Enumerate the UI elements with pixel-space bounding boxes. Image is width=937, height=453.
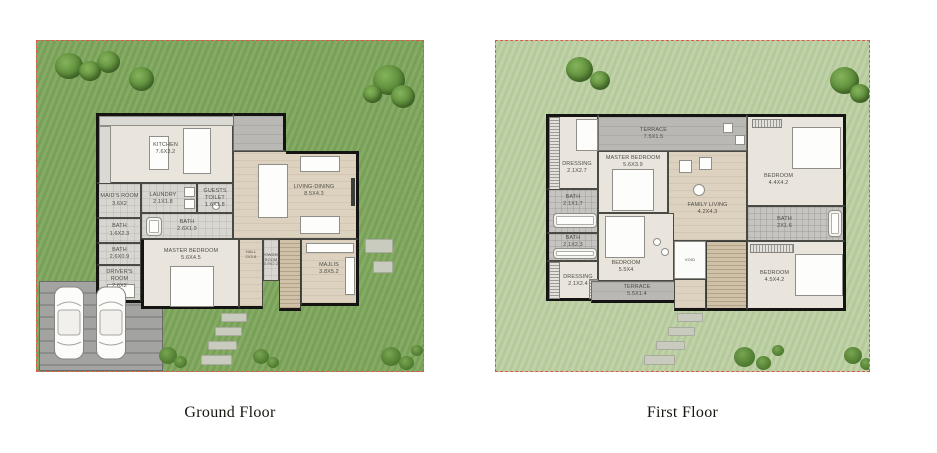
room-family-living: FAMILY LIVING4.2X4.3 <box>668 151 747 241</box>
tree <box>391 85 415 108</box>
first-floor-caption: First Floor <box>495 404 870 422</box>
void-shaft: VOID <box>674 241 706 279</box>
bush <box>411 345 423 356</box>
first-floor-plan: DRESSING2.1X2.7 TERRACE7.5X1.5 MASTER BE… <box>495 40 870 372</box>
room-label: MASTER BEDROOM5.6X3.9 <box>601 155 665 169</box>
car <box>53 285 85 361</box>
armchair <box>679 160 692 173</box>
room-label: MAJLIS3.8X5.2 <box>304 262 354 276</box>
sofa <box>306 243 354 253</box>
tree <box>55 53 83 79</box>
room-bath-upper: BATH2.1X1.7 <box>546 189 598 233</box>
stepping-stone <box>644 355 675 365</box>
entry-porch <box>233 113 286 151</box>
room-label: TERRACE7.5X1.5 <box>601 127 706 141</box>
room-label: LAUNDRY2.1X1.8 <box>144 192 182 206</box>
chair <box>653 238 661 246</box>
wardrobe <box>549 262 560 299</box>
room-label: MAID'S ROOM3.6X2 <box>99 184 140 217</box>
room-label: BATH1.6X2.3 <box>99 219 140 242</box>
room-guests-toilet: GUESTS TOILET1.6X1.8 <box>197 183 233 213</box>
tree <box>566 57 593 82</box>
room-label: BATH2.6X0.9 <box>99 244 140 264</box>
bush <box>399 356 414 370</box>
wardrobe <box>750 244 794 253</box>
room-bath-2: BATH2.6X0.9 <box>96 243 141 265</box>
sofa <box>300 216 340 234</box>
bathtub <box>553 248 597 259</box>
room-bedroom-2: BEDROOM4.5X4.2 <box>747 241 846 311</box>
room-label: BEDROOM5.5X4 <box>601 260 651 274</box>
wardrobe <box>752 119 782 128</box>
bed <box>612 169 654 211</box>
stepping-stone <box>201 355 232 365</box>
room-bedroom-1: BEDROOM4.4X4.2 <box>747 114 846 206</box>
room-label: GUESTS TOILET1.6X1.8 <box>200 188 230 209</box>
room-bath-1: BATH1.6X2.3 <box>96 218 141 243</box>
closet <box>576 119 598 151</box>
bush <box>381 347 401 366</box>
staircase <box>706 241 747 311</box>
room-maids-room: MAID'S ROOM3.6X2 <box>96 183 141 218</box>
bush <box>772 345 784 356</box>
chair <box>723 123 733 133</box>
floor-plan-sheet: KITCHEN7.6X3.2 LIVING-DINING8.5X4.3 MAID… <box>0 0 937 453</box>
room-label: POWDER ROOM0.9X2.2 <box>264 240 278 280</box>
bed <box>792 127 841 169</box>
wardrobe <box>549 117 560 190</box>
room-terrace-bottom: TERRACE5.5X1.4 <box>591 281 683 303</box>
stepping-stone <box>677 313 703 322</box>
ground-floor-caption: Ground Floor <box>36 404 424 422</box>
room-hall: HALL2X3.8 <box>239 239 263 309</box>
room-kitchen: KITCHEN7.6X3.2 <box>96 113 233 183</box>
stepping-stone <box>668 327 695 336</box>
room-label: MASTER BEDROOM5.6X4.5 <box>146 248 236 262</box>
room-laundry: LAUNDRY2.1X1.8 <box>141 183 197 213</box>
tree <box>850 84 870 103</box>
room-bath-lower: BATH2.1X2.3 <box>546 233 598 261</box>
stepping-stone <box>215 327 242 336</box>
room-label: TERRACE5.5X1.4 <box>592 282 682 300</box>
tree <box>129 67 154 91</box>
landing <box>674 279 706 311</box>
staircase <box>279 239 301 311</box>
tree <box>97 51 120 73</box>
room-powder-room: POWDER ROOM0.9X2.2 <box>263 239 279 281</box>
patio-pad <box>373 261 393 273</box>
stepping-stone <box>656 341 685 350</box>
room-label: DRESSING2.1X2.4 <box>561 274 595 288</box>
bathtub <box>553 213 597 228</box>
kitchen-counter <box>99 116 234 126</box>
patio-pad <box>365 239 393 253</box>
room-master-bedroom: MASTER BEDROOM5.6X3.9 <box>598 151 668 213</box>
bush <box>174 356 187 368</box>
bush <box>860 358 870 370</box>
room-living-dining: LIVING-DINING8.5X4.3 <box>233 151 359 239</box>
room-dressing-master: DRESSING2.1X2.7 <box>546 114 598 189</box>
room-label: BEDROOM4.4X4.2 <box>754 173 803 187</box>
room-label: DRESSING2.1X2.7 <box>559 161 595 175</box>
tree <box>590 71 610 90</box>
room-label: HALL2X3.8 <box>242 250 260 259</box>
room-label: KITCHEN7.6X3.2 <box>101 142 230 156</box>
tree <box>363 85 382 103</box>
stepping-stone <box>208 341 237 350</box>
room-bedroom-3: BEDROOM5.5X4 <box>598 213 674 281</box>
bed <box>170 266 214 307</box>
bush <box>734 347 755 367</box>
room-majlis: MAJLIS3.8X5.2 <box>301 239 359 306</box>
room-label: BATH2.1X1.7 <box>551 194 595 208</box>
bush <box>267 357 279 368</box>
wall <box>286 151 359 154</box>
bush <box>756 356 771 370</box>
room-master-bath: BATH2.6X1.9 <box>141 213 233 239</box>
sofa <box>300 156 340 172</box>
coffee-table <box>693 184 705 196</box>
room-label: BATH2.1X2.3 <box>551 235 595 249</box>
room-label: BATH2X1.6 <box>750 216 819 230</box>
room-bath-right: BATH2X1.6 <box>747 206 846 241</box>
room-terrace-top: TERRACE7.5X1.5 <box>598 114 747 151</box>
bathtub <box>828 210 842 237</box>
washer <box>184 187 195 197</box>
stepping-stone <box>221 313 247 322</box>
dryer <box>184 199 195 209</box>
chair <box>735 135 745 145</box>
room-label: FAMILY LIVING4.2X4.3 <box>671 202 744 216</box>
bed <box>795 254 843 296</box>
room-label: LIVING-DINING8.5X4.3 <box>274 184 354 198</box>
ground-floor-plan: KITCHEN7.6X3.2 LIVING-DINING8.5X4.3 MAID… <box>36 40 424 372</box>
room-label: BATH2.6X1.9 <box>142 214 232 238</box>
room-master-bedroom: MASTER BEDROOM5.6X4.5 <box>141 239 239 309</box>
room-label: BEDROOM4.5X4.2 <box>752 270 797 284</box>
armchair <box>699 157 712 170</box>
car <box>95 285 127 361</box>
room-label: VOID <box>675 242 705 278</box>
chair <box>661 248 669 256</box>
bed <box>605 216 645 258</box>
